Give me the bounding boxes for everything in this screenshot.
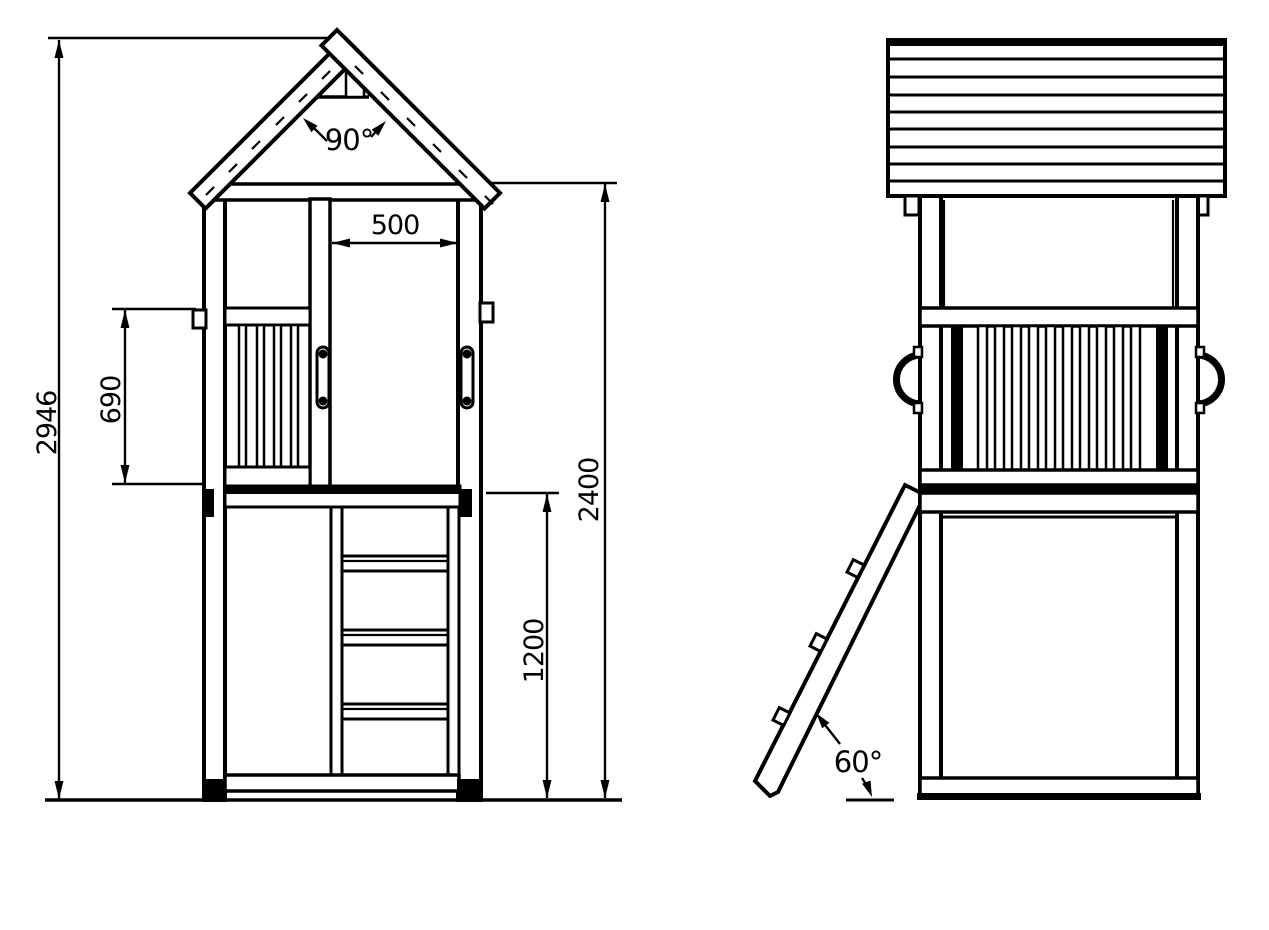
side-roof xyxy=(886,38,1227,196)
balustrade-slat xyxy=(1131,326,1140,470)
ladder-rung xyxy=(342,704,448,719)
balustrade-bottom-rail xyxy=(920,470,1198,485)
corner-post-bar xyxy=(1156,326,1168,470)
arrowhead-up-icon xyxy=(601,184,610,202)
balustrade-top-rail xyxy=(920,308,1198,326)
dimension-roof-angle: 90° xyxy=(303,118,386,157)
handle-screw-icon xyxy=(463,397,472,406)
arrowhead-down-icon xyxy=(601,780,610,798)
dimension-label-balustrade-height: 690 xyxy=(96,376,127,425)
rung-board xyxy=(342,556,448,571)
handle-mount xyxy=(1196,347,1204,357)
handle-ring xyxy=(896,355,921,404)
arrowhead-down-icon xyxy=(543,780,552,798)
arrowhead-down-icon xyxy=(862,781,872,798)
dimension-label-roof-base-height: 2400 xyxy=(574,458,605,523)
base-edge xyxy=(917,793,1201,800)
top-beam xyxy=(207,184,479,200)
dimension-opening-width: 500 xyxy=(332,210,458,248)
side-elevation: 60° xyxy=(755,38,1227,800)
dimension-ladder-angle: 60° xyxy=(816,713,894,800)
dimension-label-total-height: 2946 xyxy=(32,391,63,456)
dimension-label-platform-height: 1200 xyxy=(519,619,550,684)
arrowhead-down-icon xyxy=(55,781,64,799)
dimension-label-opening-width: 500 xyxy=(371,210,420,241)
balustrade-slat xyxy=(995,326,1004,470)
balustrade-slat xyxy=(239,325,246,467)
ridge-cap xyxy=(886,38,1227,46)
balustrade-slat xyxy=(1097,326,1106,470)
side-tower-structure xyxy=(896,196,1221,800)
corner-bracket-left xyxy=(204,489,214,517)
lower-frame xyxy=(941,517,1177,778)
dimension-label-ladder-angle: 60° xyxy=(834,745,882,779)
balustrade-slat xyxy=(257,325,264,467)
corner-post-bar xyxy=(951,326,963,470)
balustrade-slat xyxy=(291,325,298,467)
front-elevation: 2946 2400 1200 690 xyxy=(32,30,622,800)
technical-drawing-canvas: 2946 2400 1200 690 xyxy=(0,0,1269,930)
balustrade-top-rail xyxy=(225,308,310,325)
handle-screw-icon xyxy=(463,350,472,359)
handle-ring xyxy=(1197,355,1222,404)
rung-board xyxy=(342,630,448,645)
balustrade-slat xyxy=(1046,326,1055,470)
balustrade-slat xyxy=(1080,326,1089,470)
dimension-roof-base-height: 2400 xyxy=(486,183,617,798)
dimension-platform-height: 1200 xyxy=(486,493,559,798)
arrowhead-right-icon xyxy=(440,239,458,248)
ladder-rail-left xyxy=(331,507,342,776)
gable-roof xyxy=(190,30,500,209)
rail-end-tab-left xyxy=(905,196,919,215)
side-balustrade xyxy=(920,308,1198,485)
side-platform xyxy=(920,485,1198,512)
door-handle-right xyxy=(461,347,473,408)
balustrade-slat xyxy=(1063,326,1072,470)
balustrade-bottom-rail xyxy=(225,467,310,486)
arrowhead-up-icon xyxy=(55,40,64,58)
bottom-beam xyxy=(225,775,459,791)
ladder-rung xyxy=(342,556,448,571)
balustrade-slat xyxy=(1012,326,1021,470)
balustrade-slat xyxy=(274,325,281,467)
arrowhead-left-icon xyxy=(332,239,350,248)
platform-edge xyxy=(225,486,460,494)
ladder-rung xyxy=(342,630,448,645)
interior-ladder xyxy=(331,507,459,776)
arrowhead-down-icon xyxy=(121,465,130,483)
balustrade-slat xyxy=(1114,326,1123,470)
dimension-balustrade-height: 690 xyxy=(96,309,207,484)
balustrade-slat xyxy=(978,326,987,470)
front-balustrade xyxy=(225,308,310,486)
platform-board xyxy=(920,493,1198,512)
handle-mount xyxy=(914,403,922,413)
handle-mount xyxy=(1196,403,1204,413)
arrowhead-up-icon xyxy=(121,310,130,328)
handle-screw-icon xyxy=(319,397,328,406)
front-tower-structure xyxy=(193,184,493,800)
roof-outline xyxy=(888,40,1225,196)
handle-screw-icon xyxy=(319,350,328,359)
ladder-rail-right xyxy=(448,507,459,776)
side-rail-end-tab-left xyxy=(193,310,206,328)
dimension-label-roof-angle: 90° xyxy=(325,123,373,157)
balustrade-slat xyxy=(1029,326,1038,470)
post-foot-right xyxy=(457,779,481,800)
side-rail-end-tab-right xyxy=(480,303,493,322)
roof-board-right xyxy=(322,30,501,209)
door-handle-left xyxy=(317,347,329,408)
arrowhead-up-icon xyxy=(543,494,552,512)
post-foot-left xyxy=(202,779,226,800)
rung-board xyxy=(342,704,448,719)
handle-mount xyxy=(914,347,922,357)
drawing-page: 2946 2400 1200 690 xyxy=(0,0,1269,930)
corner-bracket-right xyxy=(460,489,472,517)
